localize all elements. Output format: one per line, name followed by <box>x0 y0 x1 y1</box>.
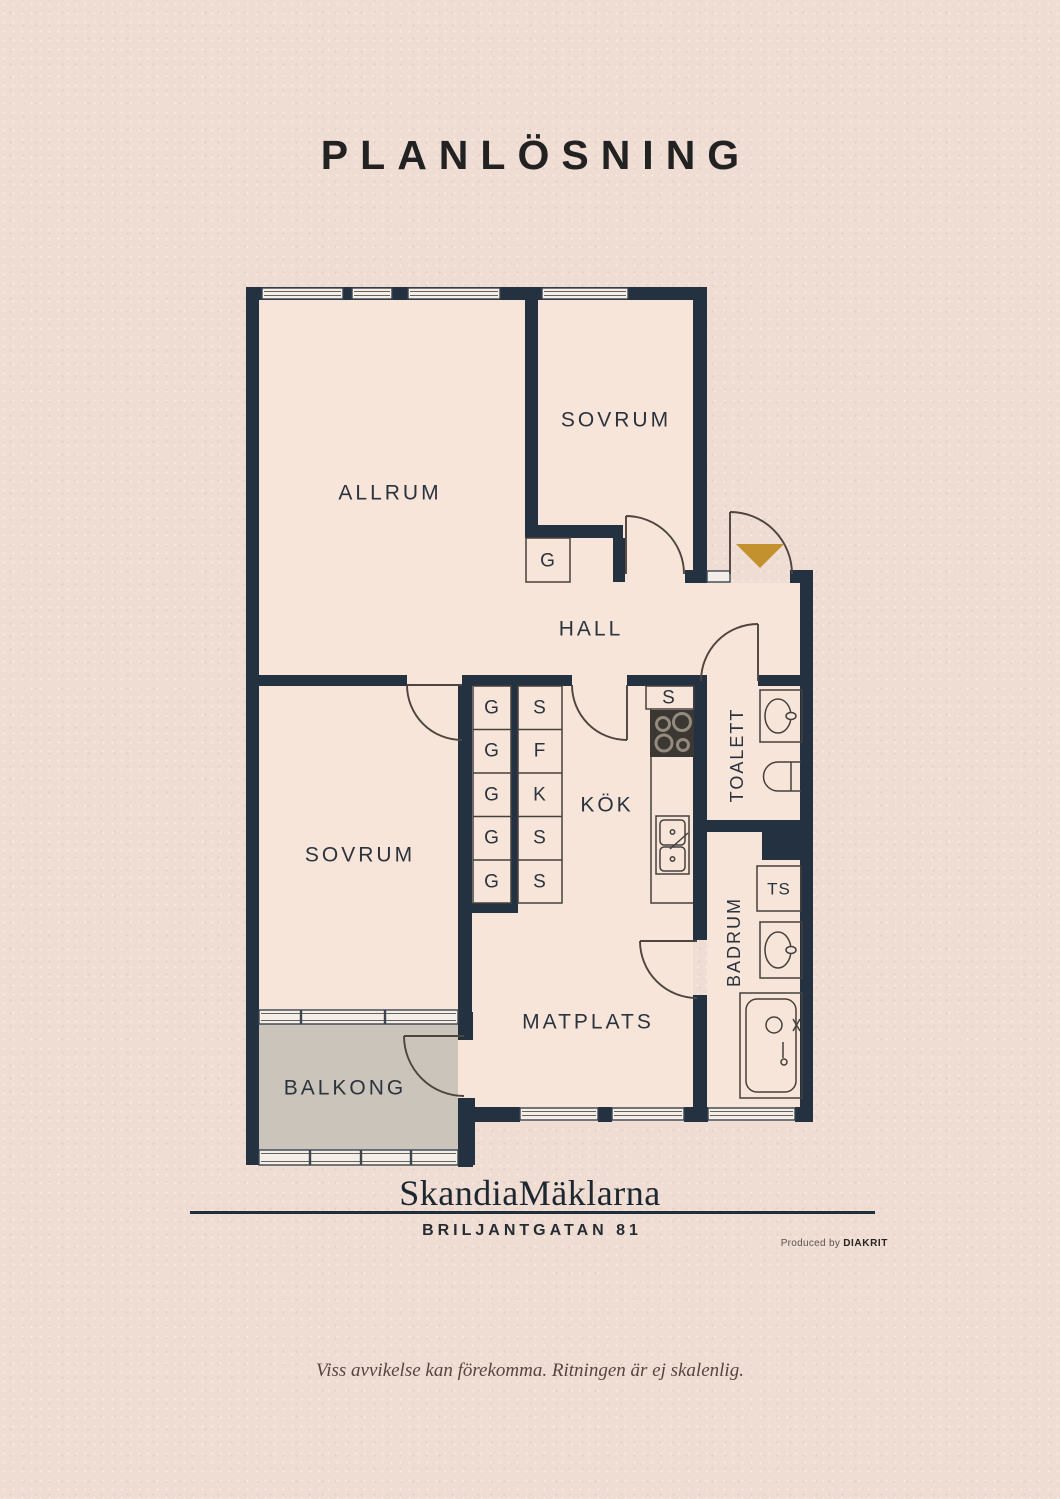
wall-sovrumtop-bottom <box>525 525 623 538</box>
window-bottom-3 <box>708 1108 795 1120</box>
floor-plan-page: PLANLÖSNING <box>0 0 1060 1499</box>
wall-bottom-pier-c <box>684 1107 708 1122</box>
label-sovrum-bottom: SOVRUM <box>305 844 415 867</box>
wall-kitchen-right <box>693 686 707 940</box>
wall-bottom-pier-b <box>598 1107 612 1122</box>
window-top-3 <box>408 288 500 299</box>
wall-balkong-right-lower <box>458 1098 473 1167</box>
page-title: PLANLÖSNING <box>0 132 1060 179</box>
floor-plan: ALLRUM SOVRUM HALL KÖK SOVRUM MATPLATS B… <box>200 270 880 1180</box>
label-closet-f: F <box>534 741 547 762</box>
label-closet-s3: S <box>533 872 547 893</box>
label-balkong: BALKONG <box>284 1077 407 1100</box>
label-closet-g2: G <box>484 741 500 762</box>
wall-middle-d <box>758 675 813 686</box>
label-closet-g3: G <box>484 785 500 806</box>
wall-toalett-badrum-block <box>762 820 813 860</box>
label-closet-s1: S <box>533 698 547 719</box>
wall-sovrumtop-right <box>693 287 707 583</box>
window-top-1 <box>262 288 343 299</box>
wall-middle-b <box>462 675 572 686</box>
window-sovrum-balkong <box>259 1010 458 1024</box>
floor-hall-right <box>693 583 800 686</box>
label-allrum: ALLRUM <box>338 482 441 505</box>
wall-closet-divider <box>511 686 518 903</box>
window-top-2 <box>352 288 392 299</box>
wall-middle-a <box>246 675 407 686</box>
label-closet-g4: G <box>484 828 500 849</box>
label-closet-g5: G <box>484 872 500 893</box>
wall-sovrumbottom-right <box>458 686 472 1012</box>
window-bottom-1 <box>520 1108 598 1120</box>
label-closet-k: K <box>533 785 547 806</box>
label-ts-cabinet: TS <box>767 880 791 899</box>
wall-bottom-pier-d <box>795 1107 813 1122</box>
disclaimer-text: Viss avvikelse kan förekomma. Ritningen … <box>0 1360 1060 1382</box>
window-bottom-2 <box>612 1108 684 1120</box>
label-kitchen-closet: S <box>662 688 676 709</box>
label-toalett: TOALETT <box>727 708 747 803</box>
wall-middle-c <box>627 675 707 686</box>
agency-logo: SkandiaMäklarna <box>0 1172 1060 1214</box>
wall-badrum-left-lower <box>693 995 707 1122</box>
wall-closet-bottom <box>458 903 518 913</box>
label-closet-s2: S <box>533 828 547 849</box>
label-hall: HALL <box>559 618 624 641</box>
window-top-4 <box>542 288 628 299</box>
badrum-sink-faucet <box>786 947 796 954</box>
label-sovrum-top: SOVRUM <box>561 409 671 432</box>
wall-stub-sovrumtop-door <box>613 538 625 582</box>
label-closet-g1: G <box>484 698 500 719</box>
balkong-railing <box>259 1150 458 1165</box>
toalett-sink-faucet <box>786 713 796 720</box>
wall-top-pier-c <box>500 287 542 300</box>
property-address: BRILJANTGATAN 81 <box>0 1222 1060 1240</box>
wall-allrum-right <box>525 287 538 538</box>
wall-left <box>246 287 259 1165</box>
label-badrum: BADRUM <box>724 897 744 987</box>
label-kok: KÖK <box>580 794 633 817</box>
produced-by-prefix: Produced by <box>781 1238 840 1249</box>
producer-brand: DIAKRIT <box>843 1238 888 1249</box>
brand-divider <box>190 1211 875 1214</box>
label-matplats: MATPLATS <box>522 1011 654 1034</box>
wall-entry-left-stub <box>685 570 707 583</box>
window-entry-sidelight <box>707 571 730 582</box>
entrance-marker-icon <box>736 544 784 568</box>
wall-top-pier-b <box>392 287 408 300</box>
stove <box>650 710 694 757</box>
wall-top-pier-a <box>343 287 352 300</box>
label-hall-wardrobe: G <box>540 551 556 572</box>
produced-by: Produced by DIAKRIT <box>781 1238 888 1249</box>
floor-upper <box>259 300 693 686</box>
